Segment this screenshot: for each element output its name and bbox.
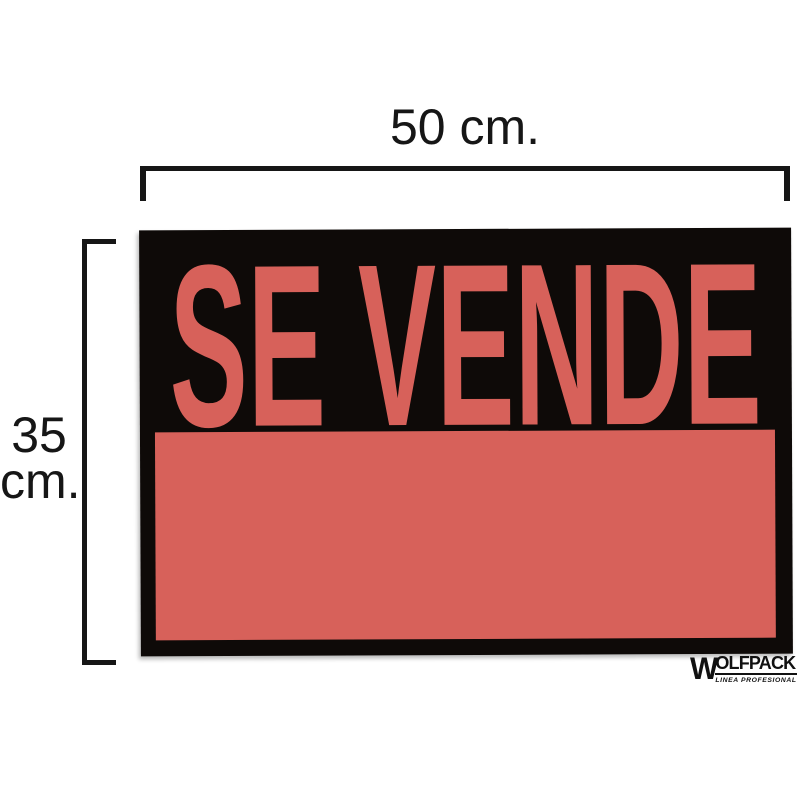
height-dimension-unit: cm. xyxy=(0,458,78,504)
height-dimension-value: 35 xyxy=(0,412,78,458)
sale-sign: SE VENDE xyxy=(139,228,793,657)
width-dimension-label: 50 cm. xyxy=(140,98,790,156)
sign-headline: SE VENDE xyxy=(169,248,762,436)
brand-wordmark: OLFPACK xyxy=(715,656,796,675)
product-image: 50 cm. 35 cm. SE VENDE W OLFPACK LINEA P… xyxy=(0,0,800,800)
width-dimension-line xyxy=(140,166,790,201)
brand-wordmark-initial: W xyxy=(690,656,716,683)
sign-blank-area xyxy=(155,430,776,641)
sign-headline-graphic: SE VENDE xyxy=(147,248,784,436)
brand-logo: W OLFPACK LINEA PROFESIONAL xyxy=(690,656,794,684)
brand-tagline: LINEA PROFESIONAL xyxy=(715,677,796,684)
height-dimension-label: 35 cm. xyxy=(0,412,78,504)
height-dimension-line xyxy=(82,239,116,665)
brand-logo-text-block: OLFPACK LINEA PROFESIONAL xyxy=(715,656,796,684)
